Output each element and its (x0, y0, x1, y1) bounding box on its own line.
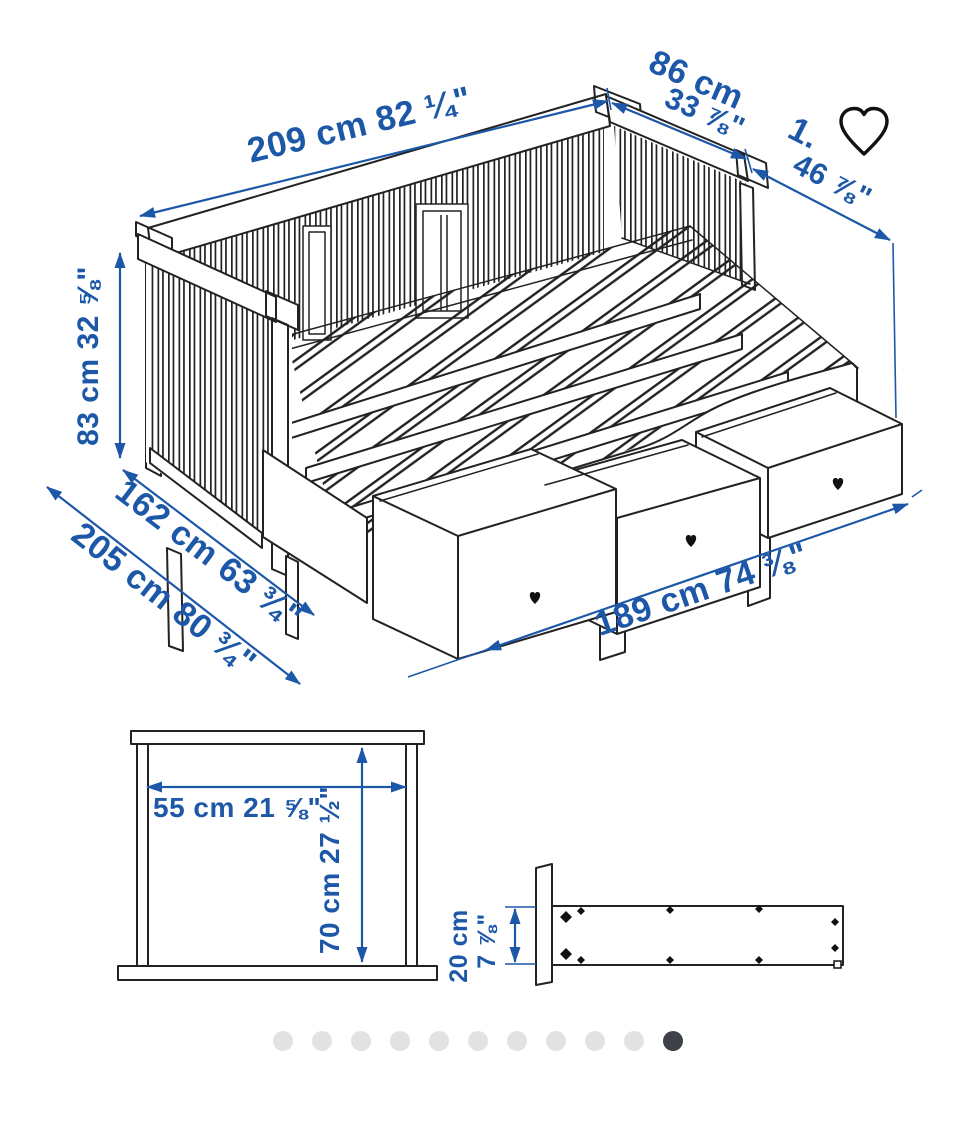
dimension-tick (912, 490, 922, 497)
extension-line (893, 243, 896, 418)
drawer-side-view-drawing: 20 cm 7 ⅞" (445, 864, 843, 985)
carousel-dots (273, 1031, 683, 1051)
dim-label-side-height-cm: 20 cm (445, 909, 473, 982)
caster-mark (834, 961, 841, 968)
dim-front-height: 70 cm 27 ½" (314, 748, 362, 962)
carousel-dot[interactable] (429, 1031, 449, 1051)
drawer-front-frame (118, 731, 437, 980)
drawer-side-panel (536, 864, 843, 985)
carousel-dot[interactable] (390, 1031, 410, 1051)
carousel-dot[interactable] (312, 1031, 332, 1051)
heart-icon (841, 109, 887, 155)
dim-height-left: 83 cm 32 ⅝" (72, 253, 120, 458)
favorite-button[interactable] (841, 109, 887, 155)
product-gallery-slide: 209 cm 82 ¼" 86 cm 33 ⅞" 1. 46 ⅞" 83 cm … (0, 0, 960, 1124)
dim-label-side-height-in: 7 ⅞" (473, 913, 501, 969)
carousel-dot[interactable] (546, 1031, 566, 1051)
dim-label-front-height: 70 cm 27 ½" (314, 786, 345, 954)
drawer-front-view-drawing: 55 cm 21 ⅝" 70 cm 27 ½" (118, 731, 437, 980)
dim-front-width: 55 cm 21 ⅝" (147, 787, 406, 823)
dim-label-front-width: 55 cm 21 ⅝" (153, 792, 321, 823)
carousel-dot[interactable] (585, 1031, 605, 1051)
product-dimension-diagram: 209 cm 82 ¼" 86 cm 33 ⅞" 1. 46 ⅞" 83 cm … (0, 0, 960, 1124)
carousel-dot[interactable] (351, 1031, 371, 1051)
carousel-dot[interactable] (624, 1031, 644, 1051)
dim-label-height: 83 cm 32 ⅝" (72, 266, 105, 446)
carousel-dot[interactable] (507, 1031, 527, 1051)
dim-side-height: 20 cm 7 ⅞" (445, 907, 536, 983)
carousel-dot[interactable] (663, 1031, 683, 1051)
dim-label-pullout-2: 46 ⅞" (788, 148, 877, 215)
carousel-dot[interactable] (273, 1031, 293, 1051)
carousel-dot[interactable] (468, 1031, 488, 1051)
